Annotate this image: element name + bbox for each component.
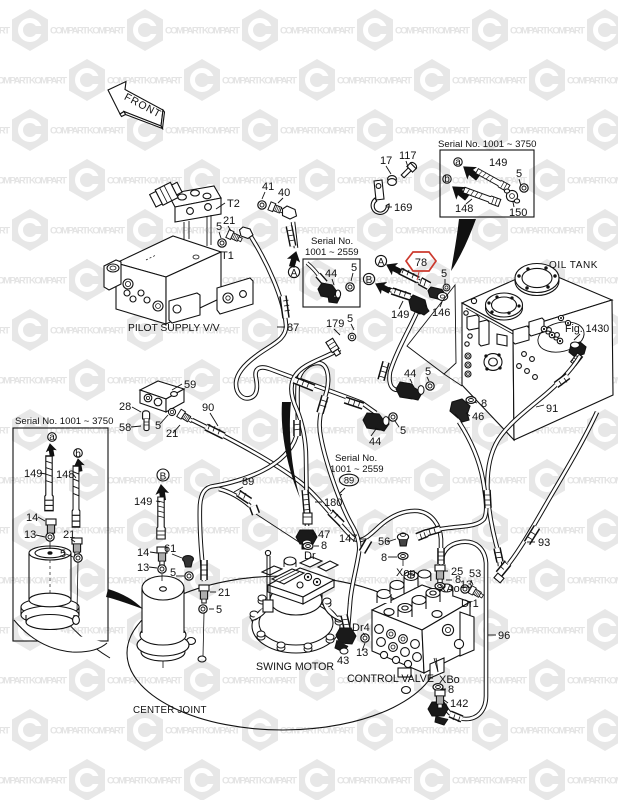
svg-text:5: 5 [216,221,222,233]
svg-text:Dr1: Dr1 [461,598,479,610]
svg-text:1001 ~ 2559: 1001 ~ 2559 [305,247,359,258]
svg-text:PILOT SUPPLY V/V: PILOT SUPPLY V/V [128,323,220,334]
svg-text:Serial No. 1001 ~ 3750: Serial No. 1001 ~ 3750 [15,416,113,427]
svg-text:8: 8 [321,540,327,552]
svg-text:13: 13 [460,579,472,591]
svg-text:5: 5 [60,548,66,560]
svg-text:OIL TANK: OIL TANK [549,260,598,271]
svg-text:A: A [291,268,298,279]
svg-text:148: 148 [56,469,74,481]
svg-text:Dr: Dr [304,550,316,562]
svg-text:44: 44 [325,268,337,280]
svg-text:43: 43 [337,655,349,667]
svg-text:B: B [160,471,167,482]
svg-text:A: A [378,257,385,268]
svg-text:1001 ~ 2559: 1001 ~ 2559 [330,464,384,475]
svg-text:T2: T2 [227,198,240,210]
svg-text:T1: T1 [221,250,234,262]
svg-text:5: 5 [516,168,522,180]
svg-text:148: 148 [455,203,473,215]
svg-text:Xop: Xop [396,567,416,579]
svg-text:5: 5 [170,567,176,579]
svg-text:5: 5 [351,262,357,274]
svg-text:b: b [75,449,81,460]
svg-text:SWING MOTOR: SWING MOTOR [256,661,334,673]
svg-text:149: 149 [489,157,507,169]
svg-text:5: 5 [441,268,447,280]
svg-text:89: 89 [344,476,354,486]
svg-text:5: 5 [216,604,222,616]
svg-text:46: 46 [472,411,484,423]
svg-text:180: 180 [324,497,342,509]
svg-text:91: 91 [546,403,558,415]
svg-text:78: 78 [415,257,427,269]
svg-text:21: 21 [218,587,230,599]
svg-text:14: 14 [137,547,149,559]
svg-text:149: 149 [134,496,152,508]
svg-text:169: 169 [394,202,412,214]
svg-text:5: 5 [425,366,431,378]
svg-text:117: 117 [399,150,417,162]
svg-text:61: 61 [164,543,176,555]
svg-text:Serial No.: Serial No. [335,453,377,464]
svg-text:B: B [366,275,373,286]
svg-text:58: 58 [119,422,131,434]
svg-text:13: 13 [24,529,36,541]
svg-text:149: 149 [24,468,42,480]
svg-text:21: 21 [223,215,235,227]
svg-text:142: 142 [450,698,468,710]
svg-text:87: 87 [287,322,299,334]
svg-text:a: a [455,157,461,168]
svg-text:8: 8 [448,684,454,696]
svg-text:Dr4: Dr4 [352,622,370,634]
svg-text:90: 90 [202,402,214,414]
svg-text:Serial No. 1001 ~ 3750: Serial No. 1001 ~ 3750 [438,139,536,150]
svg-text:147: 147 [339,533,357,545]
svg-text:40: 40 [278,187,290,199]
svg-text:5: 5 [155,420,161,432]
svg-text:5: 5 [347,313,353,325]
svg-text:CONTROL VALVE: CONTROL VALVE [347,673,434,685]
svg-text:17: 17 [380,155,392,167]
svg-text:5: 5 [400,425,406,437]
svg-text:149: 149 [391,309,409,321]
svg-text:150: 150 [509,207,527,219]
svg-text:41: 41 [262,181,274,193]
svg-text:44: 44 [404,368,416,380]
svg-text:93: 93 [538,537,550,549]
svg-text:21: 21 [166,428,178,440]
svg-text:b: b [444,174,450,185]
svg-text:8: 8 [481,398,487,410]
svg-text:14: 14 [26,512,38,524]
svg-text:Serial No.: Serial No. [311,236,353,247]
svg-text:13: 13 [137,562,149,574]
svg-text:a: a [49,432,55,443]
svg-text:146: 146 [432,307,450,319]
svg-text:21: 21 [63,529,75,541]
svg-text:96: 96 [498,630,510,642]
svg-text:13: 13 [356,647,368,659]
svg-text:Fig. 1430: Fig. 1430 [565,323,609,335]
svg-text:59: 59 [184,379,196,391]
svg-text:89: 89 [242,476,254,488]
svg-text:CENTER JOINT: CENTER JOINT [133,705,207,716]
svg-text:179: 179 [326,318,344,330]
svg-text:XAo: XAo [439,583,460,595]
svg-text:28: 28 [119,401,131,413]
svg-text:44: 44 [369,436,381,448]
svg-text:8: 8 [381,552,387,564]
